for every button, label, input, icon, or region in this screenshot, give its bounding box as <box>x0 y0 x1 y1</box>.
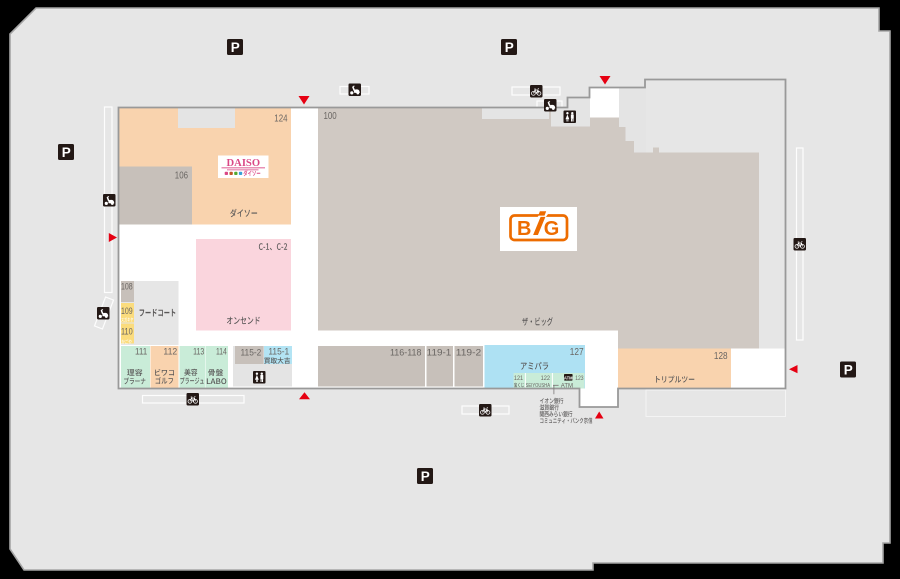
svg-text:119-2: 119-2 <box>456 347 481 358</box>
svg-text:114: 114 <box>216 345 227 356</box>
svg-text:110: 110 <box>121 325 133 336</box>
svg-text:ATM: ATM <box>564 375 573 380</box>
svg-text:111: 111 <box>135 346 147 357</box>
svg-text:112: 112 <box>163 345 177 356</box>
svg-text:ATM: ATM <box>561 383 573 390</box>
svg-text:115-1: 115-1 <box>268 346 289 356</box>
svg-text:B: B <box>517 218 531 240</box>
svg-text:109: 109 <box>121 305 133 316</box>
svg-text:121: 121 <box>514 375 524 382</box>
svg-text:108: 108 <box>121 280 133 291</box>
svg-text:128: 128 <box>714 351 728 362</box>
svg-text:122: 122 <box>541 375 551 382</box>
svg-text:119-1: 119-1 <box>427 347 452 358</box>
svg-text:106: 106 <box>175 171 189 182</box>
svg-text:SEIYOUSHA: SEIYOUSHA <box>526 383 551 389</box>
svg-text:113: 113 <box>193 345 204 356</box>
svg-text:127: 127 <box>570 347 584 358</box>
svg-text:115-2: 115-2 <box>241 348 262 358</box>
svg-text:116-118: 116-118 <box>390 347 422 358</box>
svg-text:G: G <box>544 218 560 240</box>
svg-text:123: 123 <box>575 375 584 382</box>
svg-text:100: 100 <box>324 111 338 122</box>
svg-text:124: 124 <box>274 114 288 125</box>
